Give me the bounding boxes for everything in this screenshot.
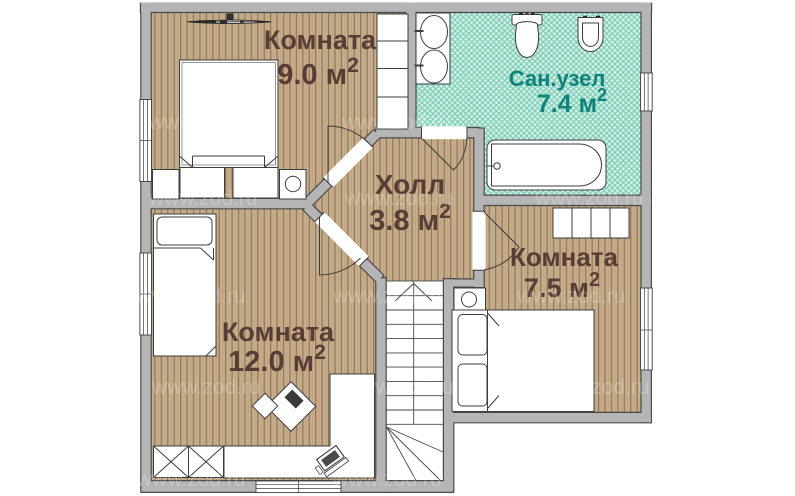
svg-text:www.zod.ru: www.zod.ru bbox=[522, 468, 632, 491]
svg-text:www.zod.ru: www.zod.ru bbox=[148, 187, 258, 210]
svg-text:www.zod.ru: www.zod.ru bbox=[516, 285, 626, 308]
svg-text:www.zod.ru: www.zod.ru bbox=[332, 285, 442, 308]
svg-text:www.zod.ru: www.zod.ru bbox=[148, 111, 258, 134]
svg-text:www.zod.ru: www.zod.ru bbox=[151, 376, 261, 399]
svg-text:www.zod.ru: www.zod.ru bbox=[344, 376, 454, 399]
svg-text:www.zod.ru: www.zod.ru bbox=[341, 111, 451, 134]
svg-text:Сан.узел: Сан.узел bbox=[509, 66, 606, 91]
svg-text:www.zod.ru: www.zod.ru bbox=[136, 285, 246, 308]
svg-text:12.0 м2: 12.0 м2 bbox=[228, 341, 326, 378]
svg-text:www.zod.ru: www.zod.ru bbox=[332, 468, 442, 491]
svg-text:www.zod.ru: www.zod.ru bbox=[534, 187, 644, 210]
svg-text:7.4 м2: 7.4 м2 bbox=[537, 85, 607, 118]
svg-text:Комната: Комната bbox=[264, 25, 377, 55]
svg-text:www.zod.ru: www.zod.ru bbox=[136, 468, 246, 491]
svg-text:www.zod.ru: www.zod.ru bbox=[540, 376, 650, 399]
svg-text:9.0 м2: 9.0 м2 bbox=[277, 54, 359, 91]
svg-text:Комната: Комната bbox=[510, 242, 619, 272]
svg-text:www.zod.ru: www.zod.ru bbox=[344, 187, 454, 210]
